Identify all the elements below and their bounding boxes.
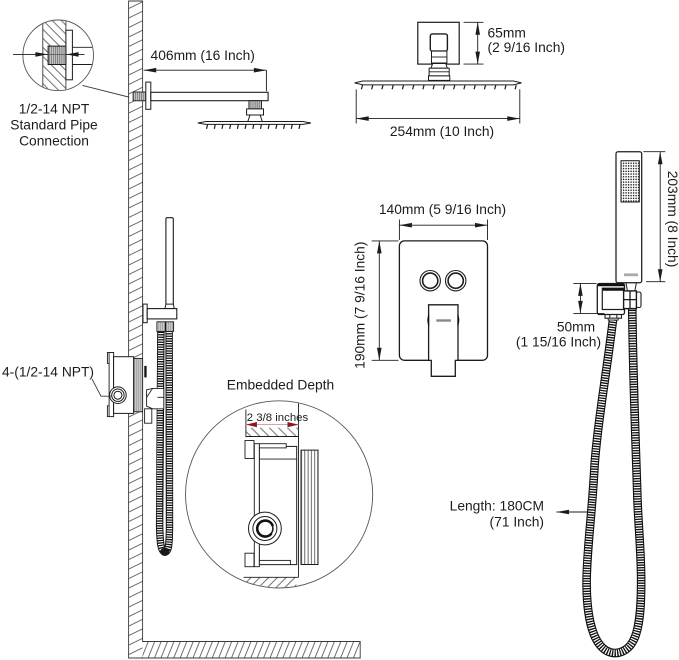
svg-text:Length: 180CM: Length: 180CM [450,499,544,514]
svg-text:(1 15/16 Inch): (1 15/16 Inch) [516,335,601,350]
svg-text:65mm: 65mm [488,26,526,41]
svg-text:406mm (16 Inch): 406mm (16 Inch) [151,48,255,63]
svg-text:254mm (10 Inch): 254mm (10 Inch) [390,124,494,139]
svg-text:Connection: Connection [19,134,89,149]
svg-text:203mm (8 Inch): 203mm (8 Inch) [665,171,679,268]
svg-text:Standard Pipe: Standard Pipe [10,118,98,133]
svg-text:Embedded Depth: Embedded Depth [227,378,334,393]
svg-text:4-(1/2-14 NPT): 4-(1/2-14 NPT) [2,365,94,380]
svg-text:(2 9/16 Inch): (2 9/16 Inch) [488,40,565,55]
svg-text:1/2-14 NPT: 1/2-14 NPT [19,102,90,117]
svg-text:50mm: 50mm [557,320,595,335]
svg-text:(71 Inch): (71 Inch) [490,515,544,530]
svg-text:190mm (7 9/16 Inch): 190mm (7 9/16 Inch) [352,242,367,369]
svg-text:2 3/8 inches: 2 3/8 inches [247,412,309,424]
svg-text:140mm (5 9/16 Inch): 140mm (5 9/16 Inch) [379,202,506,217]
